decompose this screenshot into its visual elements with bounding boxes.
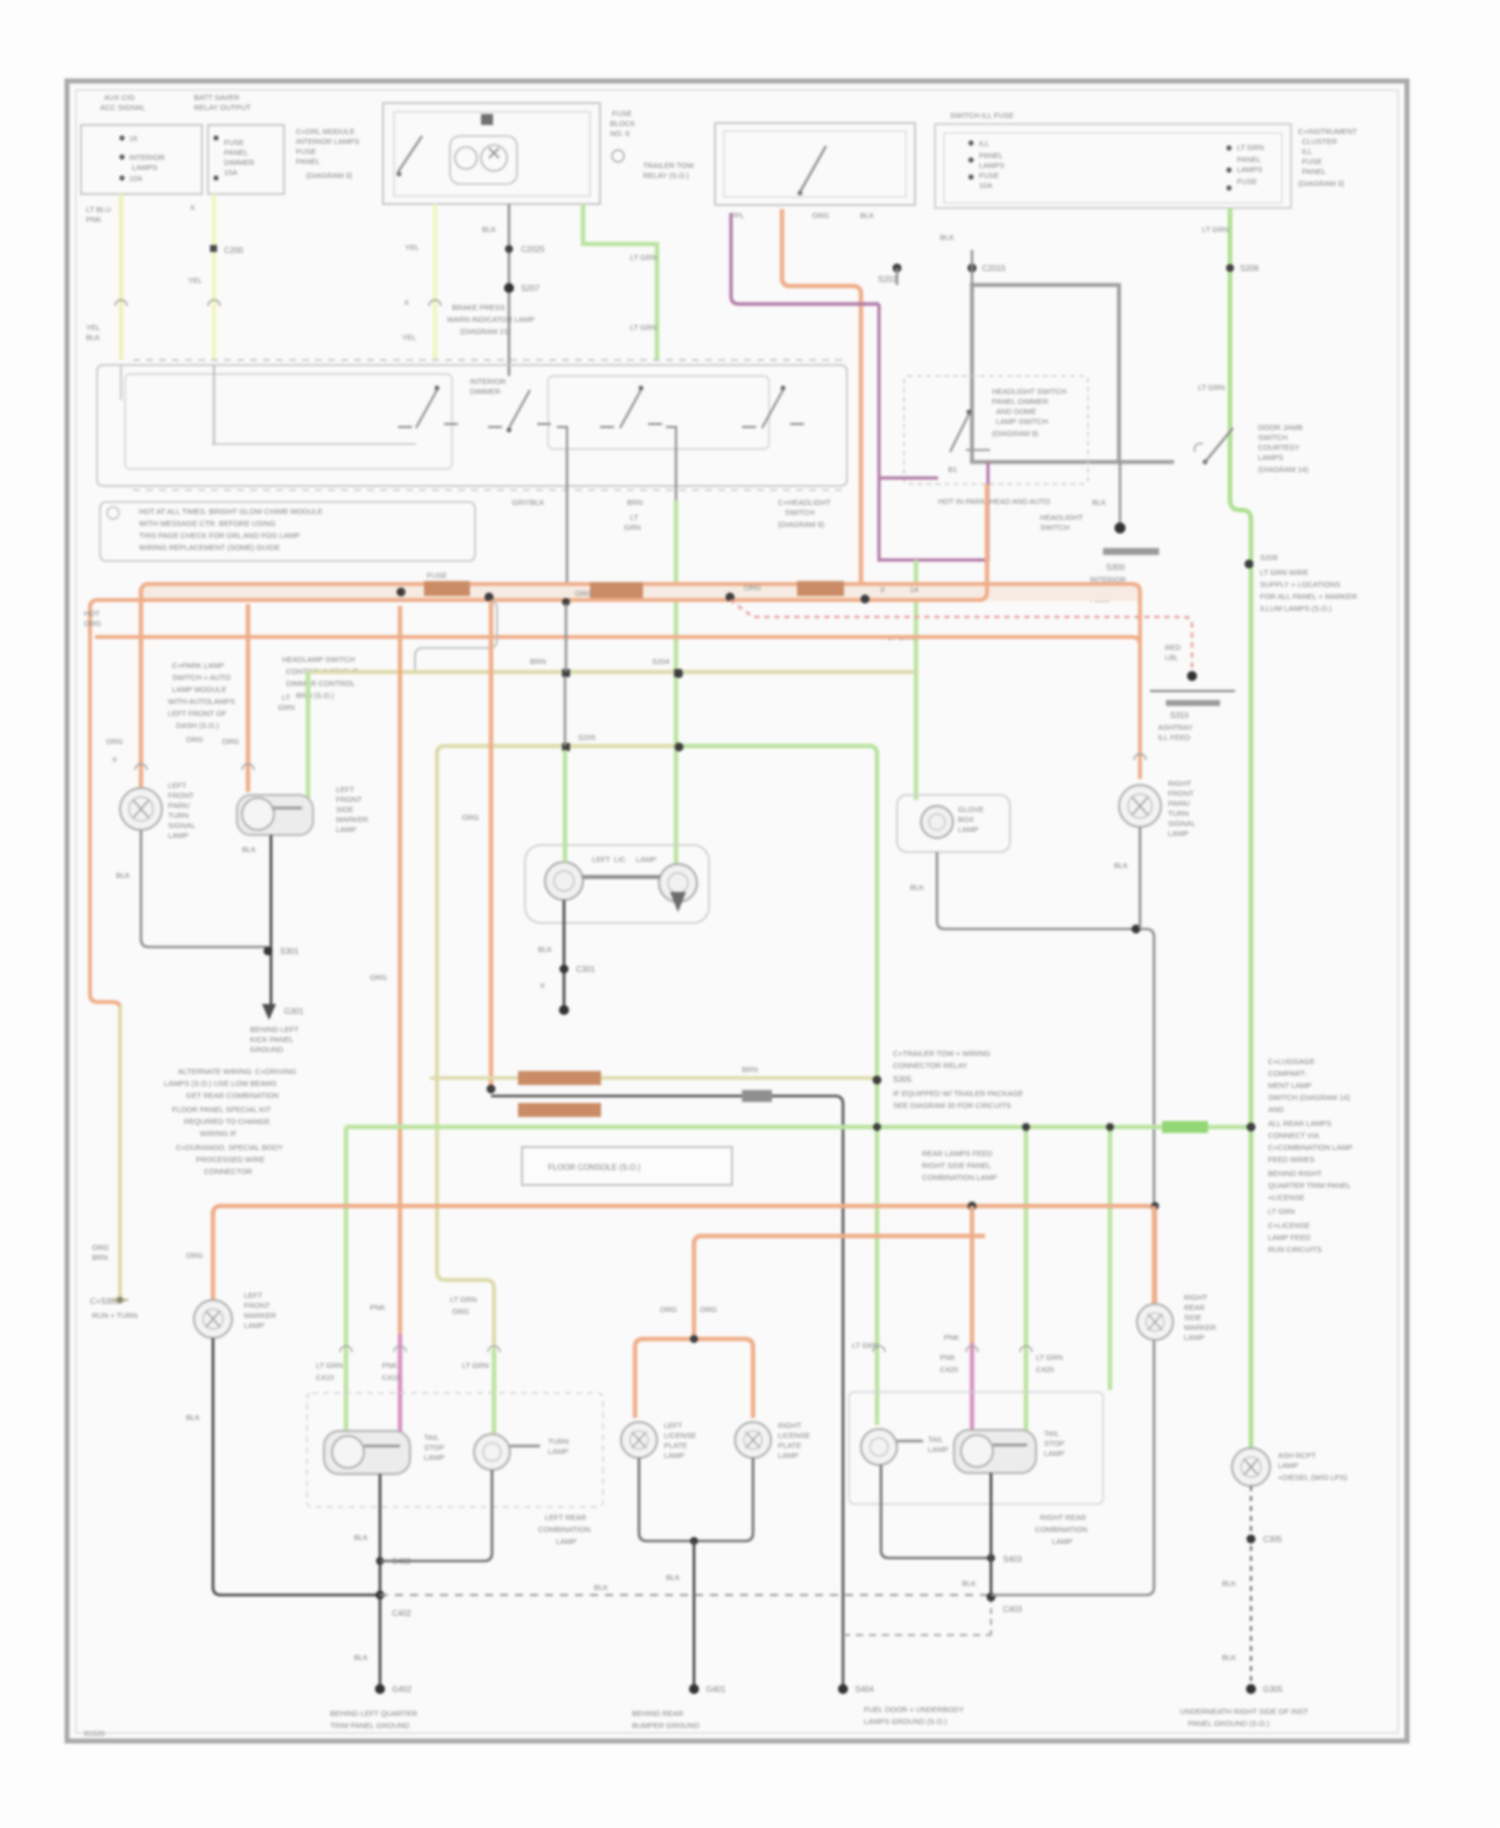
svg-text:LAMP: LAMP	[1168, 829, 1188, 838]
svg-text:TURN: TURN	[1168, 809, 1189, 818]
svg-text:+LICENSE: +LICENSE	[1268, 1193, 1304, 1202]
svg-text:61520: 61520	[84, 1729, 105, 1738]
svg-text:C+HEADLIGHT: C+HEADLIGHT	[778, 498, 831, 507]
svg-text:C420: C420	[940, 1365, 958, 1374]
svg-text:BRN: BRN	[742, 1065, 758, 1074]
svg-text:C+DURANGO, SPECIAL BODY: C+DURANGO, SPECIAL BODY	[176, 1143, 283, 1152]
svg-text:FOR ALL PANEL + MARKER: FOR ALL PANEL + MARKER	[1260, 592, 1358, 601]
svg-text:LT GRN: LT GRN	[630, 323, 657, 332]
svg-text:BRAKE PRESS: BRAKE PRESS	[452, 303, 505, 312]
svg-text:COMBINATION: COMBINATION	[538, 1525, 590, 1534]
svg-text:BLK: BLK	[666, 1573, 680, 1582]
svg-text:SEE DIAGRAM 30 FOR CIRCUITS: SEE DIAGRAM 30 FOR CIRCUITS	[893, 1101, 1011, 1110]
svg-text:LBL: LBL	[1165, 653, 1178, 662]
svg-text:S208: S208	[1260, 553, 1278, 562]
svg-text:TAIL: TAIL	[928, 1435, 943, 1444]
svg-text:HEADLIGHT SWITCH: HEADLIGHT SWITCH	[992, 387, 1066, 396]
svg-text:CONNECTOR RELAY: CONNECTOR RELAY	[893, 1061, 967, 1070]
svg-text:FRONT: FRONT	[1168, 789, 1194, 798]
svg-text:SIDE: SIDE	[1184, 1313, 1202, 1322]
svg-text:RIGHT SIDE PANEL: RIGHT SIDE PANEL	[922, 1161, 991, 1170]
svg-text:ORG: ORG	[660, 1305, 677, 1314]
svg-text:COMBINATION LAMP: COMBINATION LAMP	[922, 1173, 997, 1182]
svg-text:INTERIOR: INTERIOR	[470, 377, 506, 386]
svg-text:HOT: HOT	[84, 609, 100, 618]
svg-text:DASH (S.O.): DASH (S.O.)	[176, 721, 219, 730]
svg-text:ORG: ORG	[186, 735, 203, 744]
svg-text:LAMPS: LAMPS	[979, 161, 1004, 170]
svg-text:BLK: BLK	[354, 1653, 368, 1662]
svg-text:FRONT: FRONT	[168, 791, 194, 800]
svg-text:BLK: BLK	[594, 1583, 608, 1592]
svg-text:C420: C420	[1036, 1365, 1054, 1374]
svg-text:LICENSE: LICENSE	[664, 1431, 696, 1440]
svg-text:BLK: BLK	[940, 233, 954, 242]
svg-text:PNK: PNK	[944, 1333, 959, 1342]
svg-text:CONNECTOR: CONNECTOR	[204, 1167, 253, 1176]
svg-text:C2025: C2025	[521, 245, 545, 254]
svg-text:SIGNAL: SIGNAL	[168, 821, 196, 830]
svg-text:TAIL: TAIL	[1044, 1429, 1059, 1438]
svg-text:BLK: BLK	[962, 1579, 976, 1588]
svg-text:B1: B1	[948, 465, 957, 474]
svg-text:BLK: BLK	[1222, 1653, 1236, 1662]
svg-text:BLK: BLK	[116, 871, 130, 880]
svg-text:BLOCK: BLOCK	[610, 119, 635, 128]
svg-text:C402: C402	[392, 1609, 412, 1618]
svg-text:S207: S207	[521, 284, 540, 293]
svg-text:S204: S204	[652, 657, 670, 666]
svg-text:GRN: GRN	[278, 703, 295, 712]
svg-text:BLK: BLK	[86, 333, 100, 342]
svg-text:RELAY OUTPUT: RELAY OUTPUT	[194, 103, 251, 112]
svg-text:ASH RCPT: ASH RCPT	[1278, 1451, 1316, 1460]
svg-text:REAR LAMPS FEED: REAR LAMPS FEED	[922, 1149, 993, 1158]
svg-text:C301: C301	[576, 965, 596, 974]
svg-text:ORG: ORG	[84, 619, 101, 628]
svg-text:RED: RED	[1165, 643, 1181, 652]
svg-text:SIDE: SIDE	[336, 805, 354, 814]
svg-text:ILL: ILL	[1302, 147, 1312, 156]
svg-text:LT GRN: LT GRN	[1202, 225, 1229, 234]
svg-text:KICK PANEL: KICK PANEL	[250, 1035, 294, 1044]
svg-text:AND: AND	[1268, 1105, 1284, 1114]
svg-text:LAMP: LAMP	[1278, 1461, 1298, 1470]
svg-text:BLK: BLK	[1092, 498, 1106, 507]
svg-text:ORG: ORG	[370, 973, 387, 982]
svg-text:YEL: YEL	[405, 243, 419, 252]
svg-text:PANEL: PANEL	[1302, 167, 1326, 176]
svg-text:LEFT REAR: LEFT REAR	[545, 1513, 587, 1522]
svg-text:+DIESEL (W/O LPS): +DIESEL (W/O LPS)	[1278, 1473, 1348, 1482]
svg-text:QUARTER TRIM PANEL: QUARTER TRIM PANEL	[1268, 1181, 1351, 1190]
svg-text:ORG: ORG	[186, 1251, 203, 1260]
svg-text:UNDERNEATH RIGHT SIDE OF INST: UNDERNEATH RIGHT SIDE OF INST	[1180, 1707, 1308, 1716]
svg-text:LAMP: LAMP	[548, 1447, 568, 1456]
svg-text:PNK: PNK	[370, 1303, 385, 1312]
svg-text:NO. 6: NO. 6	[610, 129, 630, 138]
svg-text:PANEL: PANEL	[224, 148, 248, 157]
svg-text:LIC: LIC	[614, 855, 626, 864]
svg-text:TAIL: TAIL	[424, 1433, 439, 1442]
svg-text:14: 14	[910, 585, 918, 594]
svg-text:ORG: ORG	[222, 737, 239, 746]
svg-text:GET REAR COMBINATION: GET REAR COMBINATION	[186, 1091, 279, 1100]
svg-text:LICENSE: LICENSE	[778, 1431, 810, 1440]
svg-text:BEHIND RIGHT: BEHIND RIGHT	[1268, 1169, 1322, 1178]
svg-text:LT BLU: LT BLU	[86, 205, 111, 214]
svg-text:PROCESSED WIRE: PROCESSED WIRE	[196, 1155, 265, 1164]
svg-text:S300: S300	[1106, 563, 1125, 572]
svg-text:HOT IN PARK, HEAD AND AUTO: HOT IN PARK, HEAD AND AUTO	[938, 497, 1050, 506]
svg-text:FRONT: FRONT	[244, 1301, 270, 1310]
svg-text:LAMP: LAMP	[168, 831, 188, 840]
svg-text:PANEL GROUND (S.O.): PANEL GROUND (S.O.)	[1188, 1719, 1270, 1728]
svg-text:PARK/: PARK/	[168, 801, 191, 810]
svg-text:LAMP: LAMP	[778, 1451, 798, 1460]
svg-text:C410: C410	[382, 1373, 400, 1382]
svg-text:LT GRN: LT GRN	[450, 1295, 477, 1304]
svg-text:SUPPLY + LOCATIONS: SUPPLY + LOCATIONS	[1260, 580, 1340, 589]
svg-text:PANEL: PANEL	[979, 151, 1003, 160]
svg-text:GRN: GRN	[624, 523, 641, 532]
svg-text:FUSE: FUSE	[979, 171, 999, 180]
svg-text:(DIAGRAM 14): (DIAGRAM 14)	[1258, 465, 1309, 474]
svg-text:ORG: ORG	[700, 1305, 717, 1314]
svg-text:BLK: BLK	[482, 225, 496, 234]
svg-text:MARKER: MARKER	[244, 1311, 277, 1320]
svg-text:TURN: TURN	[548, 1437, 569, 1446]
svg-text:FUSE: FUSE	[612, 109, 632, 118]
svg-text:BRN: BRN	[92, 1253, 108, 1262]
svg-text:LAMPS: LAMPS	[1258, 453, 1283, 462]
svg-text:BOX: BOX	[958, 815, 974, 824]
svg-text:S403: S403	[1003, 1555, 1022, 1564]
svg-text:C+COMBINATION LAMP: C+COMBINATION LAMP	[1268, 1143, 1353, 1152]
svg-text:(DIAGRAM 9): (DIAGRAM 9)	[778, 520, 825, 529]
svg-text:PARK/: PARK/	[1168, 799, 1191, 808]
svg-text:RIGHT: RIGHT	[1184, 1293, 1208, 1302]
svg-text:SIGNAL: SIGNAL	[1168, 819, 1196, 828]
svg-text:S305: S305	[893, 1075, 912, 1084]
svg-text:LT GRN: LT GRN	[462, 1361, 489, 1370]
svg-text:BLK: BLK	[1222, 1579, 1236, 1588]
svg-text:ALL REAR LAMPS: ALL REAR LAMPS	[1268, 1119, 1332, 1128]
svg-text:G305: G305	[1263, 1685, 1283, 1694]
svg-text:LAMP SWITCH: LAMP SWITCH	[996, 417, 1048, 426]
svg-text:LAMP: LAMP	[636, 855, 656, 864]
svg-text:16: 16	[129, 134, 137, 143]
svg-text:BUMPER GROUND: BUMPER GROUND	[632, 1721, 700, 1730]
svg-text:FUSE: FUSE	[1302, 157, 1322, 166]
svg-text:TRIM PANEL GROUND: TRIM PANEL GROUND	[330, 1721, 410, 1730]
svg-text:LAMP: LAMP	[1184, 1333, 1204, 1342]
svg-text:REAR: REAR	[1184, 1303, 1205, 1312]
svg-text:GLOVE: GLOVE	[958, 805, 984, 814]
svg-text:10A: 10A	[129, 174, 142, 183]
svg-text:RIGHT: RIGHT	[1168, 779, 1192, 788]
svg-text:G402: G402	[392, 1685, 412, 1694]
svg-text:SWITCH + AUTO: SWITCH + AUTO	[172, 673, 231, 682]
svg-text:15A: 15A	[224, 168, 237, 177]
svg-text:HEADLIGHT: HEADLIGHT	[1040, 513, 1083, 522]
svg-text:S301: S301	[280, 947, 299, 956]
svg-text:BLK: BLK	[354, 1533, 368, 1542]
svg-text:FEED WIRES: FEED WIRES	[1268, 1155, 1315, 1164]
svg-text:ORG: ORG	[744, 583, 761, 592]
svg-text:X: X	[112, 755, 117, 764]
svg-text:ILL FEED: ILL FEED	[1158, 733, 1191, 742]
svg-text:LAMPS: LAMPS	[1237, 165, 1262, 174]
svg-text:FLOOR CONSOLE (S.O.): FLOOR CONSOLE (S.O.)	[548, 1163, 641, 1172]
svg-text:BRN: BRN	[627, 498, 643, 507]
svg-text:LAMP: LAMP	[424, 1453, 444, 1462]
svg-text:ACC SIGNAL: ACC SIGNAL	[100, 103, 145, 112]
svg-text:PNK: PNK	[86, 215, 101, 224]
svg-text:BEHIND LEFT QUARTER: BEHIND LEFT QUARTER	[330, 1709, 418, 1718]
svg-text:INTERIOR: INTERIOR	[129, 153, 165, 162]
svg-text:SWITCH (DIAGRAM 14): SWITCH (DIAGRAM 14)	[1268, 1093, 1351, 1102]
svg-text:(DIAGRAM 21): (DIAGRAM 21)	[460, 327, 511, 336]
svg-text:BATT SAVER: BATT SAVER	[194, 93, 240, 102]
svg-text:LT GRN: LT GRN	[630, 253, 657, 262]
svg-text:GROUND: GROUND	[250, 1045, 284, 1054]
svg-text:C+PARK LAMP: C+PARK LAMP	[172, 661, 224, 670]
svg-text:GRY/BLK: GRY/BLK	[512, 498, 544, 507]
svg-text:WARN INDICATOR LAMP: WARN INDICATOR LAMP	[447, 315, 535, 324]
svg-text:X: X	[404, 298, 409, 307]
svg-text:AND DOME: AND DOME	[996, 407, 1036, 416]
svg-text:STOP: STOP	[424, 1443, 444, 1452]
svg-text:ORG: ORG	[106, 737, 123, 746]
svg-text:X: X	[540, 981, 545, 990]
svg-text:BRN (S.O.): BRN (S.O.)	[296, 691, 334, 700]
svg-text:FUSE: FUSE	[224, 138, 244, 147]
svg-text:C305: C305	[1263, 1535, 1283, 1544]
svg-text:LEFT FRONT OF: LEFT FRONT OF	[168, 709, 227, 718]
svg-text:ILLUM LAMPS (S.O.): ILLUM LAMPS (S.O.)	[1260, 604, 1332, 613]
svg-text:ORG: ORG	[575, 589, 592, 598]
svg-text:LT GRN: LT GRN	[1268, 1207, 1295, 1216]
svg-text:LEFT: LEFT	[168, 781, 187, 790]
svg-text:LAMP: LAMP	[664, 1451, 684, 1460]
svg-text:LAMP: LAMP	[244, 1321, 264, 1330]
svg-text:BLK: BLK	[1114, 861, 1128, 870]
svg-text:ORG: ORG	[462, 813, 479, 822]
svg-text:HEADLAMP SWITCH: HEADLAMP SWITCH	[282, 655, 355, 664]
svg-text:WITH AUTOLAMPS: WITH AUTOLAMPS	[168, 697, 235, 706]
svg-text:YEL: YEL	[86, 323, 100, 332]
svg-text:LAMP: LAMP	[1052, 1537, 1072, 1546]
svg-text:C+LICENSE: C+LICENSE	[1268, 1221, 1310, 1230]
svg-text:LAMP: LAMP	[958, 825, 978, 834]
svg-text:(DIAGRAM 9): (DIAGRAM 9)	[992, 429, 1039, 438]
svg-text:DOOR JAMB: DOOR JAMB	[1258, 423, 1303, 432]
svg-text:BRN: BRN	[530, 657, 546, 666]
svg-text:REQUIRED TO CHANGE: REQUIRED TO CHANGE	[184, 1117, 270, 1126]
svg-text:ILL: ILL	[979, 139, 989, 148]
svg-text:FLOOR PANEL SPECIAL KIT: FLOOR PANEL SPECIAL KIT	[172, 1105, 271, 1114]
svg-text:G301: G301	[284, 1007, 304, 1016]
svg-text:S310: S310	[1170, 711, 1189, 720]
svg-text:TURN: TURN	[168, 811, 189, 820]
svg-text:BEHIND LEFT: BEHIND LEFT	[250, 1025, 299, 1034]
svg-text:LT GRN: LT GRN	[1237, 143, 1264, 152]
svg-text:ASHTRAY: ASHTRAY	[1158, 723, 1193, 732]
svg-text:COMBINATION: COMBINATION	[1035, 1525, 1087, 1534]
svg-text:COMPART-: COMPART-	[1268, 1069, 1307, 1078]
svg-text:C410: C410	[316, 1373, 334, 1382]
svg-text:(DIAGRAM 3): (DIAGRAM 3)	[306, 171, 353, 180]
svg-text:MARKER: MARKER	[1184, 1323, 1217, 1332]
svg-text:ORG: ORG	[452, 1307, 469, 1316]
svg-text:THIS PAGE CHECK FOR DRL AND FO: THIS PAGE CHECK FOR DRL AND FOG LAMP	[139, 531, 300, 540]
svg-text:WIRING REPLACEMENT (SOME) GUID: WIRING REPLACEMENT (SOME) GUIDE	[139, 543, 280, 552]
svg-text:LAMP FEED: LAMP FEED	[1268, 1233, 1311, 1242]
svg-text:LT GRN: LT GRN	[1198, 383, 1225, 392]
svg-text:LAMPS: LAMPS	[132, 163, 157, 172]
svg-text:SWITCH: SWITCH	[1040, 523, 1070, 532]
svg-text:LAMP: LAMP	[556, 1537, 576, 1546]
svg-text:BLK: BLK	[242, 845, 256, 854]
svg-text:IF EQUIPPED W/ TRAILER PACKAGE: IF EQUIPPED W/ TRAILER PACKAGE	[893, 1089, 1023, 1098]
svg-text:LAMPS GROUND (S.O.): LAMPS GROUND (S.O.)	[864, 1717, 947, 1726]
svg-text:10A: 10A	[979, 181, 992, 190]
svg-text:PANEL DIMMER: PANEL DIMMER	[992, 397, 1049, 406]
svg-text:SWITCH: SWITCH	[785, 508, 815, 517]
svg-text:LAMP: LAMP	[928, 1445, 948, 1454]
svg-text:LEFT: LEFT	[336, 785, 355, 794]
svg-text:C+TRAILER TOW + WIRING: C+TRAILER TOW + WIRING	[893, 1049, 990, 1058]
svg-text:C+DRL MODULE: C+DRL MODULE	[296, 127, 355, 136]
svg-text:YEL: YEL	[188, 276, 202, 285]
svg-text:FUSE: FUSE	[296, 147, 316, 156]
svg-text:BLK: BLK	[860, 211, 874, 220]
svg-text:S202: S202	[878, 275, 897, 284]
svg-text:C403: C403	[1003, 1605, 1023, 1614]
svg-text:HOT AT ALL TIMES. BRIGHT GLOW: HOT AT ALL TIMES. BRIGHT GLOW CHIME MODU…	[139, 507, 323, 516]
svg-text:RUN + TURN: RUN + TURN	[92, 1311, 138, 1320]
svg-text:STOP: STOP	[1044, 1439, 1064, 1448]
svg-text:FUSE: FUSE	[427, 571, 447, 580]
svg-text:BLK: BLK	[186, 1413, 200, 1422]
svg-text:CONNECT VIA: CONNECT VIA	[1268, 1131, 1319, 1140]
svg-text:RELAY (S.O.): RELAY (S.O.)	[643, 171, 689, 180]
svg-text:X: X	[190, 203, 195, 212]
svg-text:X: X	[880, 585, 885, 594]
svg-text:LAMPS (S.O.) USE LOW BEAMS: LAMPS (S.O.) USE LOW BEAMS	[164, 1079, 277, 1088]
svg-text:BLK: BLK	[538, 945, 552, 954]
svg-text:LAMP: LAMP	[1044, 1449, 1064, 1458]
svg-text:BLK: BLK	[910, 883, 924, 892]
svg-text:MARKER: MARKER	[336, 815, 369, 824]
svg-text:BEHIND REAR: BEHIND REAR	[632, 1709, 684, 1718]
svg-text:PANEL: PANEL	[296, 157, 320, 166]
svg-text:DIMMER: DIMMER	[224, 158, 255, 167]
svg-text:TRAILER TOW: TRAILER TOW	[643, 161, 695, 170]
svg-text:LEFT: LEFT	[592, 855, 611, 864]
svg-text:FRONT: FRONT	[336, 795, 362, 804]
svg-text:C+INSTRUMENT: C+INSTRUMENT	[1298, 127, 1357, 136]
svg-text:INTERIOR LAMPS: INTERIOR LAMPS	[296, 137, 359, 146]
svg-text:FUSE: FUSE	[1237, 177, 1257, 186]
svg-text:YEL: YEL	[402, 333, 416, 342]
svg-text:LT: LT	[630, 513, 639, 522]
svg-text:C2015: C2015	[982, 264, 1006, 273]
svg-text:S404: S404	[855, 1685, 874, 1694]
svg-text:LT GRN: LT GRN	[316, 1361, 343, 1370]
svg-text:CLUSTER: CLUSTER	[1302, 137, 1338, 146]
svg-text:FUEL DOOR + UNDERBODY: FUEL DOOR + UNDERBODY	[864, 1705, 964, 1714]
svg-text:LT GRN WIRE: LT GRN WIRE	[1260, 568, 1308, 577]
svg-text:DIMMER: DIMMER	[470, 387, 501, 396]
svg-text:WIRING IF: WIRING IF	[200, 1129, 237, 1138]
svg-text:PNK: PNK	[382, 1361, 397, 1370]
svg-text:ORG: ORG	[812, 211, 829, 220]
svg-text:C+LUGGAGE: C+LUGGAGE	[1268, 1057, 1315, 1066]
svg-text:ALTERNATE WIRING: C+DRIVING: ALTERNATE WIRING: C+DRIVING	[178, 1067, 296, 1076]
svg-text:RIGHT: RIGHT	[778, 1421, 802, 1430]
svg-text:AUX CIG: AUX CIG	[104, 93, 135, 102]
svg-text:LEFT: LEFT	[244, 1291, 263, 1300]
svg-text:RUN CIRCUITS: RUN CIRCUITS	[1268, 1245, 1322, 1254]
svg-text:S205: S205	[578, 733, 596, 742]
svg-text:C200: C200	[224, 246, 244, 255]
svg-text:LEFT: LEFT	[664, 1421, 683, 1430]
svg-text:SWITCH: SWITCH	[1258, 433, 1288, 442]
svg-text:LT GRN: LT GRN	[1036, 1353, 1063, 1362]
svg-text:PLATE: PLATE	[778, 1441, 801, 1450]
svg-text:(DIAGRAM 3): (DIAGRAM 3)	[1298, 179, 1345, 188]
svg-text:PANEL: PANEL	[1237, 155, 1261, 164]
svg-text:PLATE: PLATE	[664, 1441, 687, 1450]
svg-text:DIMMER CONTROL: DIMMER CONTROL	[286, 679, 355, 688]
svg-text:S206: S206	[1240, 264, 1259, 273]
svg-text:C+S303: C+S303	[90, 1297, 120, 1306]
svg-text:LAMP: LAMP	[336, 825, 356, 834]
svg-text:G401: G401	[706, 1685, 726, 1694]
svg-text:LAMP MODULE: LAMP MODULE	[172, 685, 226, 694]
svg-text:RIGHT REAR: RIGHT REAR	[1040, 1513, 1087, 1522]
svg-text:MENT LAMP: MENT LAMP	[1268, 1081, 1312, 1090]
svg-text:ORG: ORG	[92, 1243, 109, 1252]
svg-text:WITH MESSAGE CTR. BEFORE USING: WITH MESSAGE CTR. BEFORE USING	[139, 519, 276, 528]
svg-text:PNK: PNK	[940, 1353, 955, 1362]
svg-text:SWITCH ILL FUSE: SWITCH ILL FUSE	[950, 111, 1014, 120]
svg-text:COURTESY: COURTESY	[1258, 443, 1300, 452]
svg-text:LT: LT	[282, 693, 291, 702]
